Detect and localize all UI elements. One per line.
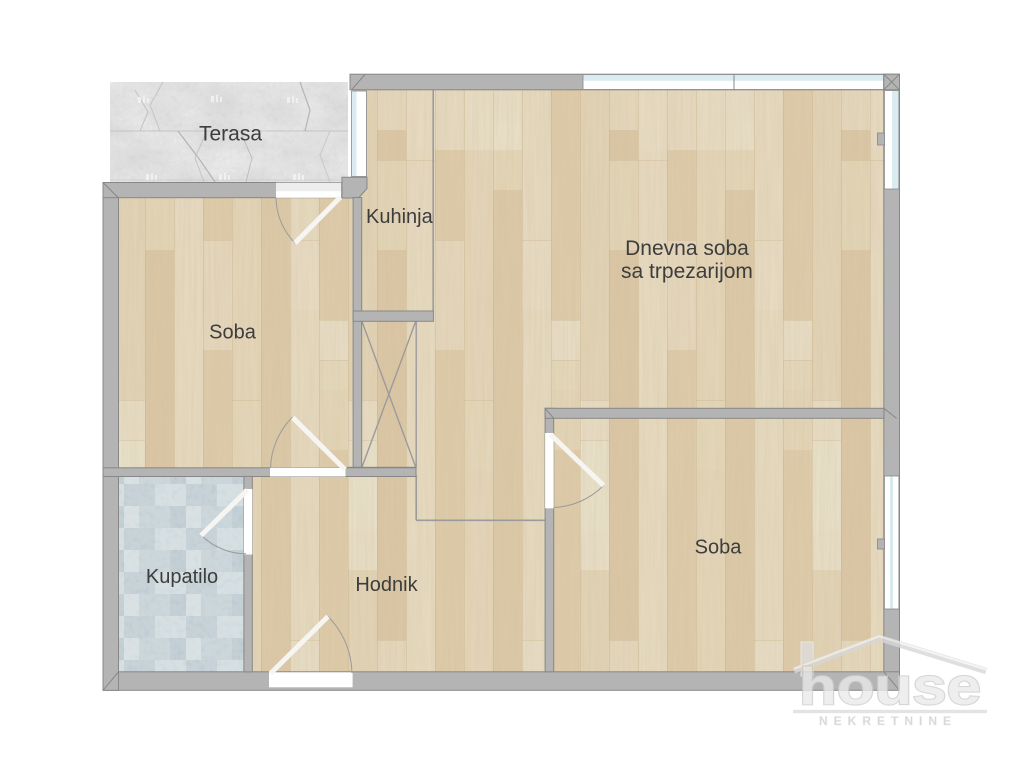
svg-text:Terasa: Terasa	[199, 123, 262, 146]
svg-text:Kuhinja: Kuhinja	[366, 206, 434, 228]
svg-text:Kupatilo: Kupatilo	[146, 566, 218, 588]
svg-text:Soba: Soba	[209, 322, 257, 344]
svg-text:Soba: Soba	[695, 537, 743, 559]
svg-text:NEKRETNINE: NEKRETNINE	[819, 714, 957, 728]
svg-text:house: house	[799, 658, 981, 716]
svg-text:Dnevna soba: Dnevna soba	[625, 237, 749, 260]
svg-text:Hodnik: Hodnik	[355, 574, 418, 596]
svg-text:sa trpezarijom: sa trpezarijom	[621, 260, 753, 283]
